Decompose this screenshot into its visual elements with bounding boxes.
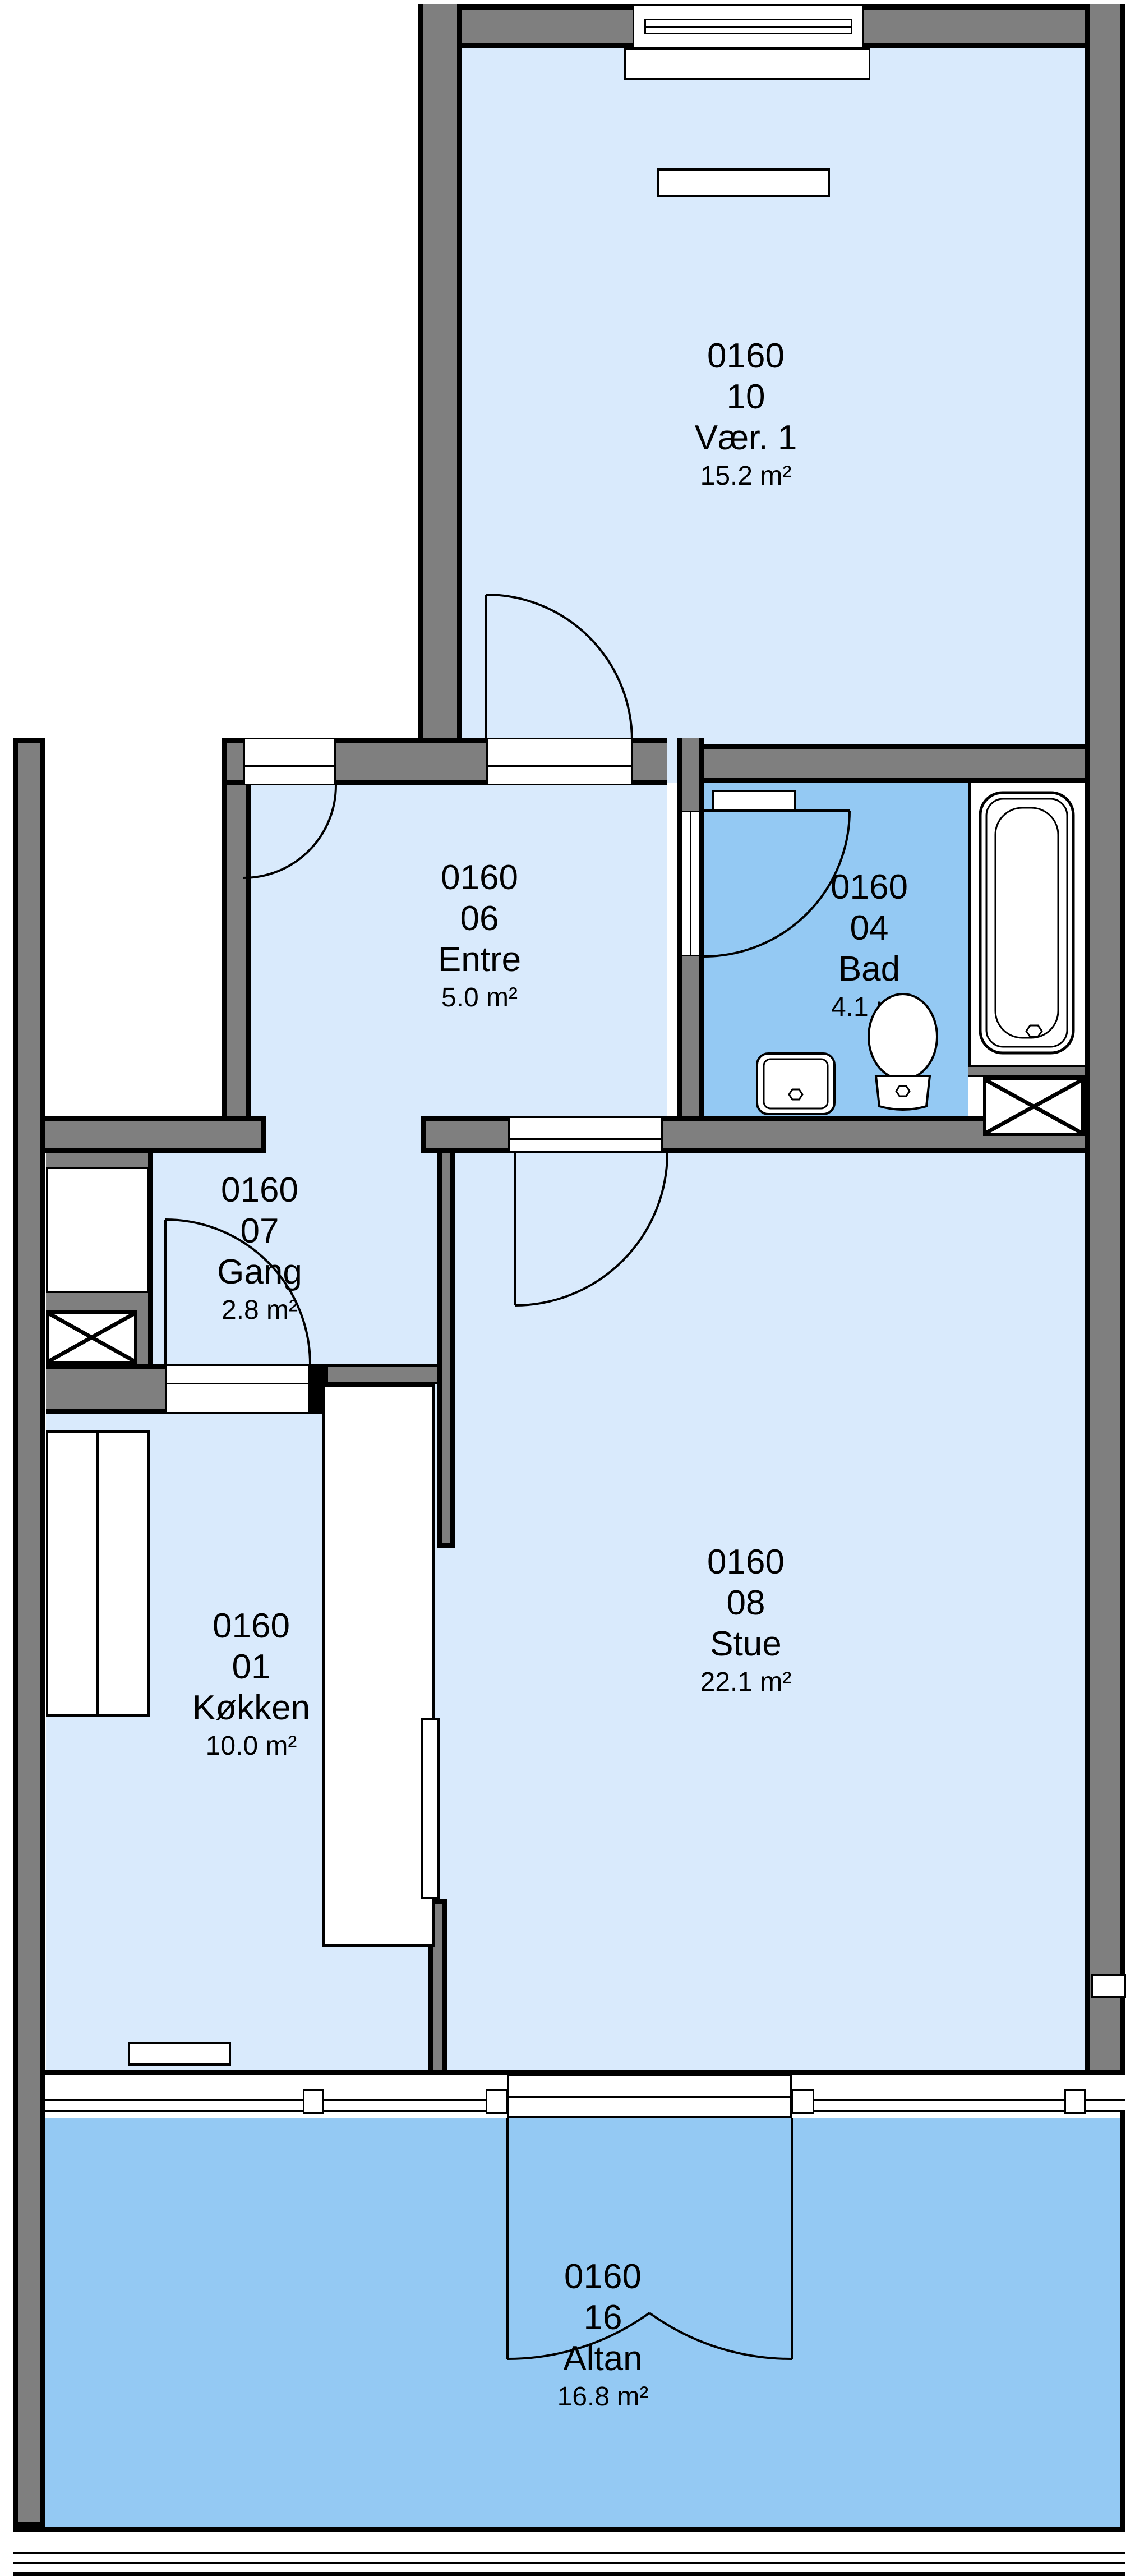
balcony-railing xyxy=(13,2527,1125,2576)
room-name: Køkken xyxy=(192,1687,310,1728)
shaft-cross-left xyxy=(46,1310,137,1364)
wall-entre-left xyxy=(222,785,251,1116)
room-label-koekken: 0160 01 Køkken 10.0 m² xyxy=(139,1606,363,1764)
room-label-gang: 0160 07 Gang 2.8 m² xyxy=(147,1170,372,1328)
vaer1-door-opening xyxy=(486,738,633,785)
room-number: 10 xyxy=(727,376,765,417)
room-unit: 0160 xyxy=(831,867,908,908)
sink xyxy=(756,1052,836,1115)
wall-gang-bottom-right xyxy=(328,1364,437,1384)
wall-below-entre-mid xyxy=(421,1116,508,1153)
room-unit: 0160 xyxy=(564,2256,642,2297)
room-area: 5.0 m² xyxy=(441,980,518,1016)
room-name: Bad xyxy=(838,949,900,990)
wall-stue-divider xyxy=(437,1153,455,1548)
shaft-cross-left-icon xyxy=(49,1314,134,1361)
shaft-cross-right-icon xyxy=(986,1080,1081,1133)
room-number: 16 xyxy=(584,2297,622,2338)
radiator-kitchen xyxy=(128,2042,231,2066)
balcony-right-edge xyxy=(1120,2112,1125,2527)
bad-shelf xyxy=(712,790,796,811)
window-top-sill xyxy=(624,48,870,80)
room-area: 2.8 m² xyxy=(222,1292,298,1328)
stue-door-opening xyxy=(508,1116,663,1153)
wall-left-exterior xyxy=(13,738,45,2527)
room-label-stue: 0160 08 Stue 22.1 m² xyxy=(634,1542,858,1700)
wall-outlet-stue xyxy=(1091,1974,1126,1998)
radiator-vaer1 xyxy=(657,168,830,197)
room-name: Altan xyxy=(563,2338,642,2379)
room-number: 01 xyxy=(232,1646,271,1687)
bathtub xyxy=(979,791,1075,1055)
room-unit: 0160 xyxy=(707,1542,785,1583)
glazing-mullion xyxy=(1064,2089,1086,2114)
wall-below-entre-left xyxy=(45,1116,266,1153)
wall-vaer1-bad xyxy=(704,744,1085,783)
balcony-door-opening xyxy=(507,2074,792,2118)
gang-door-opening xyxy=(165,1364,310,1414)
room-name: Stue xyxy=(710,1623,782,1664)
room-unit: 0160 xyxy=(221,1170,298,1211)
room-number: 06 xyxy=(460,898,499,939)
entry-door-opening xyxy=(243,738,336,785)
closet xyxy=(46,1167,150,1293)
room-unit: 0160 xyxy=(213,1606,290,1646)
room-label-altan: 0160 16 Altan 16.8 m² xyxy=(491,2256,715,2415)
glazing-mullion xyxy=(792,2089,814,2114)
room-unit: 0160 xyxy=(707,335,785,376)
wall-vaer1-left xyxy=(418,4,462,785)
room-name: Entre xyxy=(438,939,521,980)
window-top-sash xyxy=(644,19,852,34)
floor-plan: 0160 10 Vær. 1 15.2 m² 0160 06 Entre 5.0… xyxy=(0,0,1135,2576)
room-number: 07 xyxy=(241,1211,279,1252)
window-top xyxy=(633,4,864,48)
room-name: Gang xyxy=(217,1252,302,1292)
wall-right-exterior xyxy=(1085,4,1125,2112)
room-area: 22.1 m² xyxy=(700,1664,792,1700)
room-unit: 0160 xyxy=(441,857,518,898)
room-number: 04 xyxy=(850,908,889,949)
kitchen-sliding-door-leaf xyxy=(421,1718,440,1899)
glazing-mullion xyxy=(486,2089,508,2114)
room-number: 08 xyxy=(727,1583,765,1623)
room-area: 16.8 m² xyxy=(557,2379,649,2415)
wall-gang-bottom-left xyxy=(46,1364,165,1414)
room-area: 10.0 m² xyxy=(206,1728,297,1764)
kitchen-counter-left xyxy=(46,1430,150,1717)
toilet xyxy=(866,992,940,1116)
room-name: Vær. 1 xyxy=(695,417,797,458)
wall-under-tub xyxy=(968,1065,1085,1077)
room-area: 15.2 m² xyxy=(700,458,792,494)
room-label-vaer1: 0160 10 Vær. 1 15.2 m² xyxy=(634,335,858,494)
shaft-cross-right xyxy=(983,1077,1085,1136)
bad-door-opening xyxy=(680,811,700,956)
room-label-entre: 0160 06 Entre 5.0 m² xyxy=(367,857,592,1016)
glazing-mullion xyxy=(303,2089,324,2114)
